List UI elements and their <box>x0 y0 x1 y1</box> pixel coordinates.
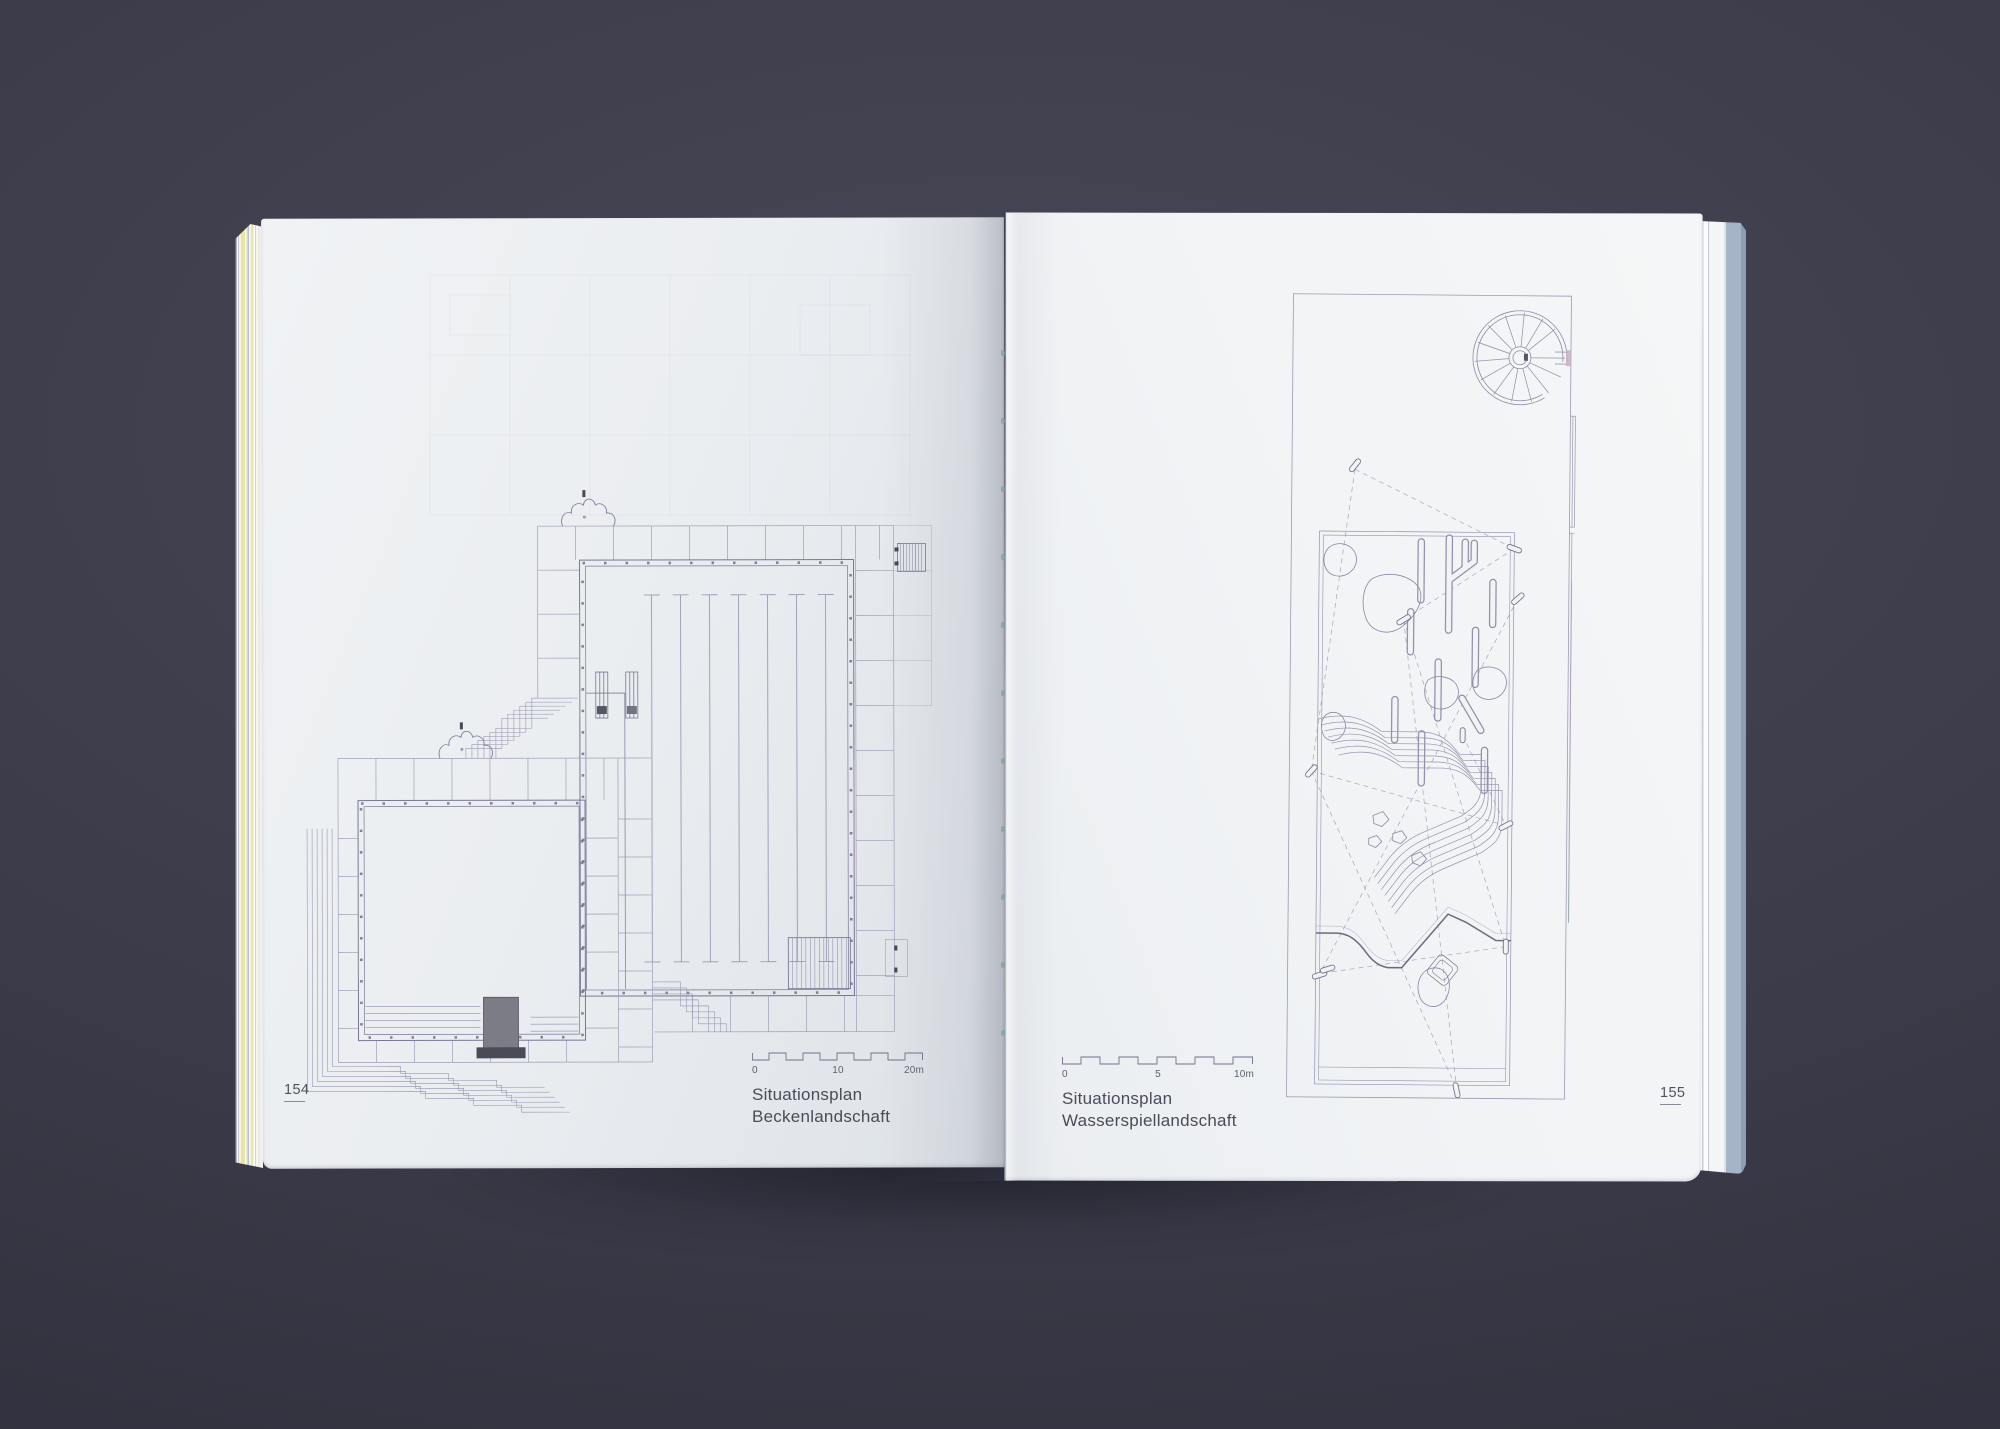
water-slide-line <box>1566 416 1575 923</box>
main-pool-rim <box>580 560 855 997</box>
scale-label-mid: 10 <box>832 1065 844 1076</box>
scale-label-mid: 5 <box>1155 1069 1161 1080</box>
caption-title: Situationsplan <box>752 1084 982 1106</box>
scale-label-start: 0 <box>1062 1069 1068 1080</box>
right-caption-block: 0 5 10m Situationsplan Wasserspiellandsc… <box>1062 1055 1292 1131</box>
rim-tile-ticks-small <box>361 803 582 1037</box>
water-channel-edge <box>1316 906 1512 969</box>
photo-backdrop: 0 10 20m Situationsplan Beckenlandschaft… <box>0 0 2000 1429</box>
fore-edge-page-stack <box>235 224 263 1168</box>
right-terrace-steps <box>652 982 726 1032</box>
small-pool-rim <box>358 800 586 1040</box>
wasserspiellandschaft-plan-drawing <box>1266 279 1603 1112</box>
beckenlandschaft-plan-drawing <box>279 459 980 1120</box>
caption-subtitle: Beckenlandschaft <box>752 1106 982 1128</box>
scale-label-end: 10m <box>1234 1069 1254 1080</box>
right-page-number: 155 <box>1660 1085 1685 1105</box>
small-pool-steps <box>365 1006 578 1034</box>
diving-platform <box>476 997 525 1058</box>
terraced-contours <box>1316 716 1503 915</box>
splash-shape-main-pool <box>562 499 615 526</box>
deck-side-stairs <box>894 543 925 571</box>
spiral-staircase <box>1455 292 1586 423</box>
play-channels <box>1394 538 1493 791</box>
plan-outer-boundary <box>1286 294 1571 1099</box>
terrace-steps-connector <box>466 698 578 758</box>
caption-subtitle: Wasserspiellandschaft <box>1062 1110 1292 1132</box>
swim-lane-lines <box>644 595 835 962</box>
left-page-number: 154 <box>284 1082 309 1102</box>
deck-side-box <box>885 939 907 976</box>
scale-label-end: 20m <box>904 1065 924 1076</box>
rim-tile-ticks <box>583 563 852 994</box>
scale-label-start: 0 <box>752 1065 758 1076</box>
caption-title: Situationsplan <box>1062 1088 1292 1110</box>
main-pool-deck <box>537 525 932 1032</box>
book-cover-edge <box>1700 221 1746 1174</box>
left-caption-block: 0 10 20m Situationsplan Beckenlandschaft <box>752 1051 982 1127</box>
spray-nozzles <box>1302 457 1527 1098</box>
corner-terrace-steps <box>307 828 570 1113</box>
